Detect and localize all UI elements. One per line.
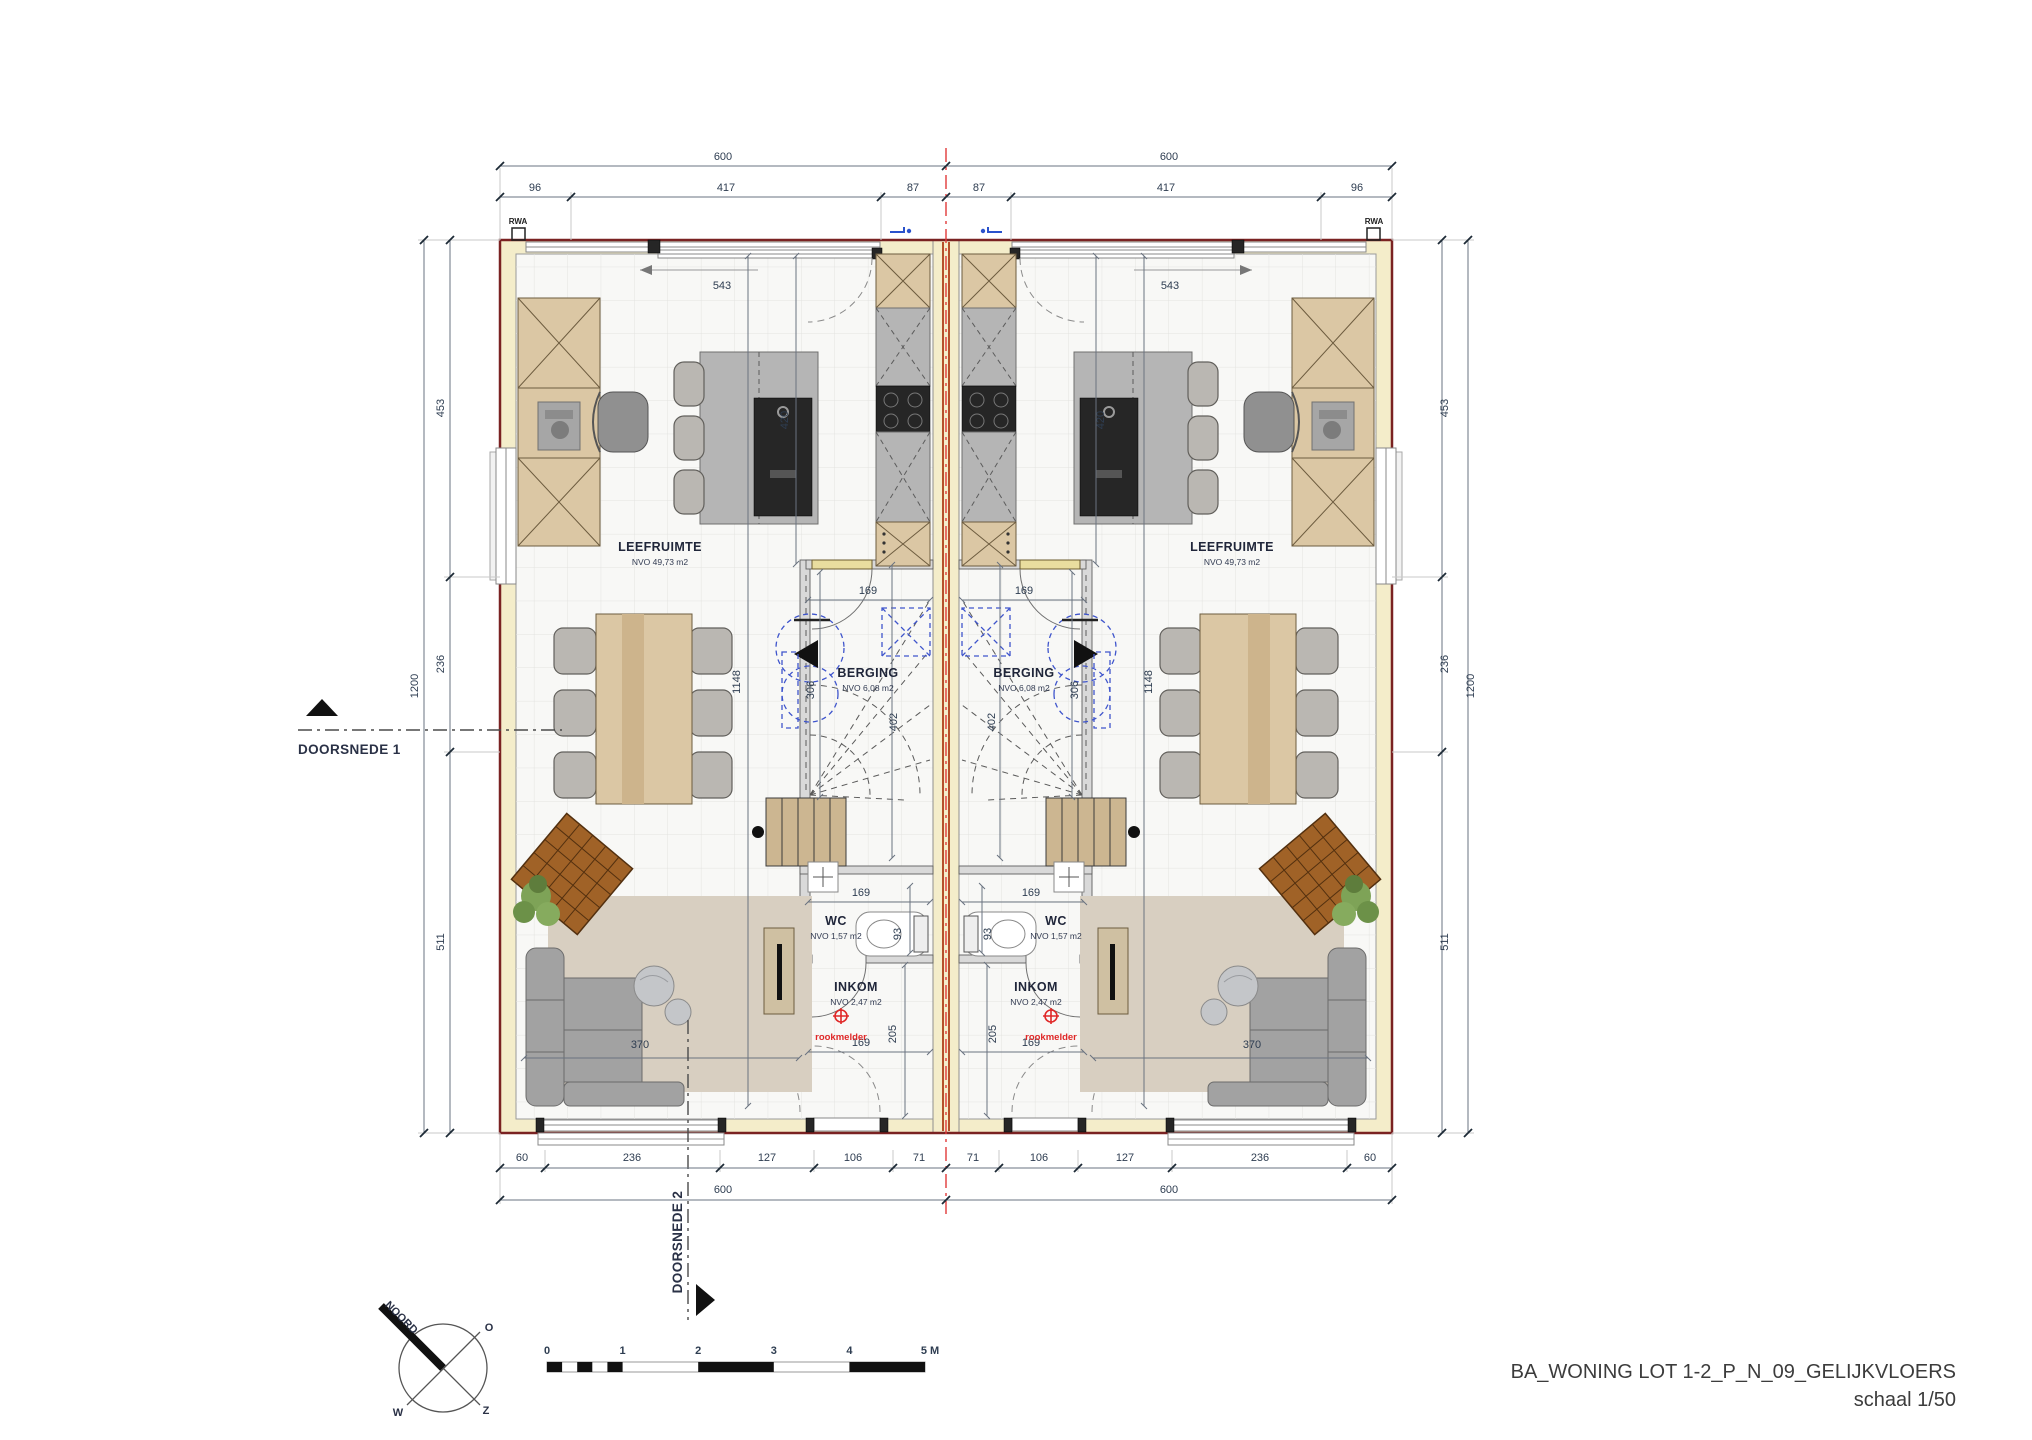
rookmelder-left: rookmelder [815, 1032, 867, 1043]
kitchen-tall-cabinets [876, 254, 930, 566]
dim-right-a: 453 [1439, 399, 1451, 417]
room-inkom-right: INKOM [1014, 980, 1058, 994]
dim-left-a: 453 [435, 399, 447, 417]
room-inkom-left: INKOM [834, 980, 878, 994]
room-berging-left: BERGING [837, 666, 898, 680]
dim-bot-b-left: 236 [623, 1152, 641, 1164]
dim-top-overall-right: 600 [1160, 151, 1178, 163]
dim-420-left: 420 [779, 411, 791, 429]
area-leefruimte-left: NVO 49,73 m2 [632, 557, 688, 567]
room-wc-left: WC [825, 914, 847, 928]
title-block: BA_WONING LOT 1-2_P_N_09_GELIJKVLOERS sc… [1511, 1361, 1956, 1411]
compass-south-label: Z [483, 1405, 490, 1417]
area-berging-left: NVO 6,08 m2 [842, 683, 894, 693]
dim-right-overall: 1200 [1465, 674, 1477, 698]
vent-icon [890, 227, 911, 233]
dim-93-right: 93 [982, 928, 994, 940]
dim-bot-e-right: 71 [967, 1152, 979, 1164]
dim-top-c-right: 87 [973, 182, 985, 194]
dim-370-left: 370 [631, 1039, 649, 1051]
dim-205-right: 205 [987, 1025, 999, 1043]
rwa-symbol [512, 228, 525, 240]
room-leefruimte-left: LEEFRUIMTE [618, 540, 702, 554]
dim-sliding-left: 543 [713, 280, 731, 292]
floorplan-drawing: 600 600 96 417 87 87 417 96 453 236 511 … [0, 0, 2032, 1440]
side-table-small [665, 999, 691, 1025]
dim-205-left: 205 [887, 1025, 899, 1043]
dim-402-right: 402 [986, 713, 998, 731]
dim-bot-a-right: 60 [1364, 1152, 1376, 1164]
dim-169-berging-left: 169 [859, 585, 877, 597]
rookmelder-right: rookmelder [1025, 1032, 1077, 1043]
dim-bot-overall-left: 600 [714, 1184, 732, 1196]
dim-bot-overall-right: 600 [1160, 1184, 1178, 1196]
window-bottom [536, 1118, 726, 1145]
rwa-label-right: RWA [1365, 217, 1384, 226]
dim-402-left: 402 [888, 713, 900, 731]
scale-1: 1 [620, 1345, 626, 1357]
floorplan-sheet: 600 600 96 417 87 87 417 96 453 236 511 … [0, 0, 2032, 1440]
scale-5: 5 M [921, 1345, 939, 1357]
compass-east-label: O [485, 1322, 494, 1334]
rwa-label-left: RWA [509, 217, 528, 226]
side-table-large [634, 966, 674, 1006]
dim-306-left: 306 [805, 681, 817, 699]
room-wc-right: WC [1045, 914, 1067, 928]
dim-420-right: 420 [1095, 411, 1107, 429]
compass: NOORD O Z W [381, 1299, 494, 1419]
drawing-scale: schaal 1/50 [1854, 1389, 1956, 1411]
dim-left-b: 236 [435, 655, 447, 673]
room-leefruimte-right: LEEFRUIMTE [1190, 540, 1274, 554]
dim-right-c: 511 [1439, 933, 1451, 951]
scale-4: 4 [846, 1345, 853, 1357]
dim-1148-left: 1148 [731, 670, 743, 694]
dim-bot-d-left: 106 [844, 1152, 862, 1164]
scale-0: 0 [544, 1345, 550, 1357]
dim-bot-a-left: 60 [516, 1152, 528, 1164]
hall-console [764, 928, 794, 1014]
window-side [490, 448, 516, 584]
dim-306-right: 306 [1069, 681, 1081, 699]
dim-93-left: 93 [892, 928, 904, 940]
scale-bar: 0 1 2 3 4 5 M [544, 1345, 939, 1372]
dim-top-b-right: 417 [1157, 182, 1175, 194]
dim-bot-c-left: 127 [758, 1152, 776, 1164]
dim-sliding-right: 543 [1161, 280, 1179, 292]
doorsnede-2-label: DOORSNEDE 2 [670, 1191, 685, 1294]
area-inkom-right: NVO 2,47 m2 [1010, 997, 1062, 1007]
dim-top-overall-left: 600 [714, 151, 732, 163]
dim-1148-right: 1148 [1143, 670, 1155, 694]
compass-west-label: W [393, 1407, 404, 1419]
dim-top-a-right: 96 [1351, 182, 1363, 194]
dining-set [554, 614, 732, 804]
dim-bot-d-right: 106 [1030, 1152, 1048, 1164]
area-wc-right: NVO 1,57 m2 [1030, 931, 1082, 941]
area-berging-right: NVO 6,08 m2 [998, 683, 1050, 693]
dim-top-b-left: 417 [717, 182, 735, 194]
doorsnede-1-label: DOORSNEDE 1 [298, 742, 401, 757]
scale-3: 3 [771, 1345, 777, 1357]
dim-bot-c-right: 127 [1116, 1152, 1134, 1164]
drawing-title: BA_WONING LOT 1-2_P_N_09_GELIJKVLOERS [1511, 1361, 1956, 1383]
dim-bot-e-left: 71 [913, 1152, 925, 1164]
dim-top-c-left: 87 [907, 182, 919, 194]
dim-370-right: 370 [1243, 1039, 1261, 1051]
dim-right-b: 236 [1439, 655, 1451, 673]
dim-bot-b-right: 236 [1251, 1152, 1269, 1164]
scale-2: 2 [695, 1345, 701, 1357]
area-inkom-left: NVO 2,47 m2 [830, 997, 882, 1007]
dim-left-c: 511 [435, 933, 447, 951]
dim-169-wc-right: 169 [1022, 887, 1040, 899]
room-berging-right: BERGING [993, 666, 1054, 680]
dim-left-overall: 1200 [409, 674, 421, 698]
dim-169-wc-left: 169 [852, 887, 870, 899]
dim-169-berging-right: 169 [1015, 585, 1033, 597]
area-wc-left: NVO 1,57 m2 [810, 931, 862, 941]
dim-top-a-left: 96 [529, 182, 541, 194]
area-leefruimte-right: NVO 49,73 m2 [1204, 557, 1260, 567]
